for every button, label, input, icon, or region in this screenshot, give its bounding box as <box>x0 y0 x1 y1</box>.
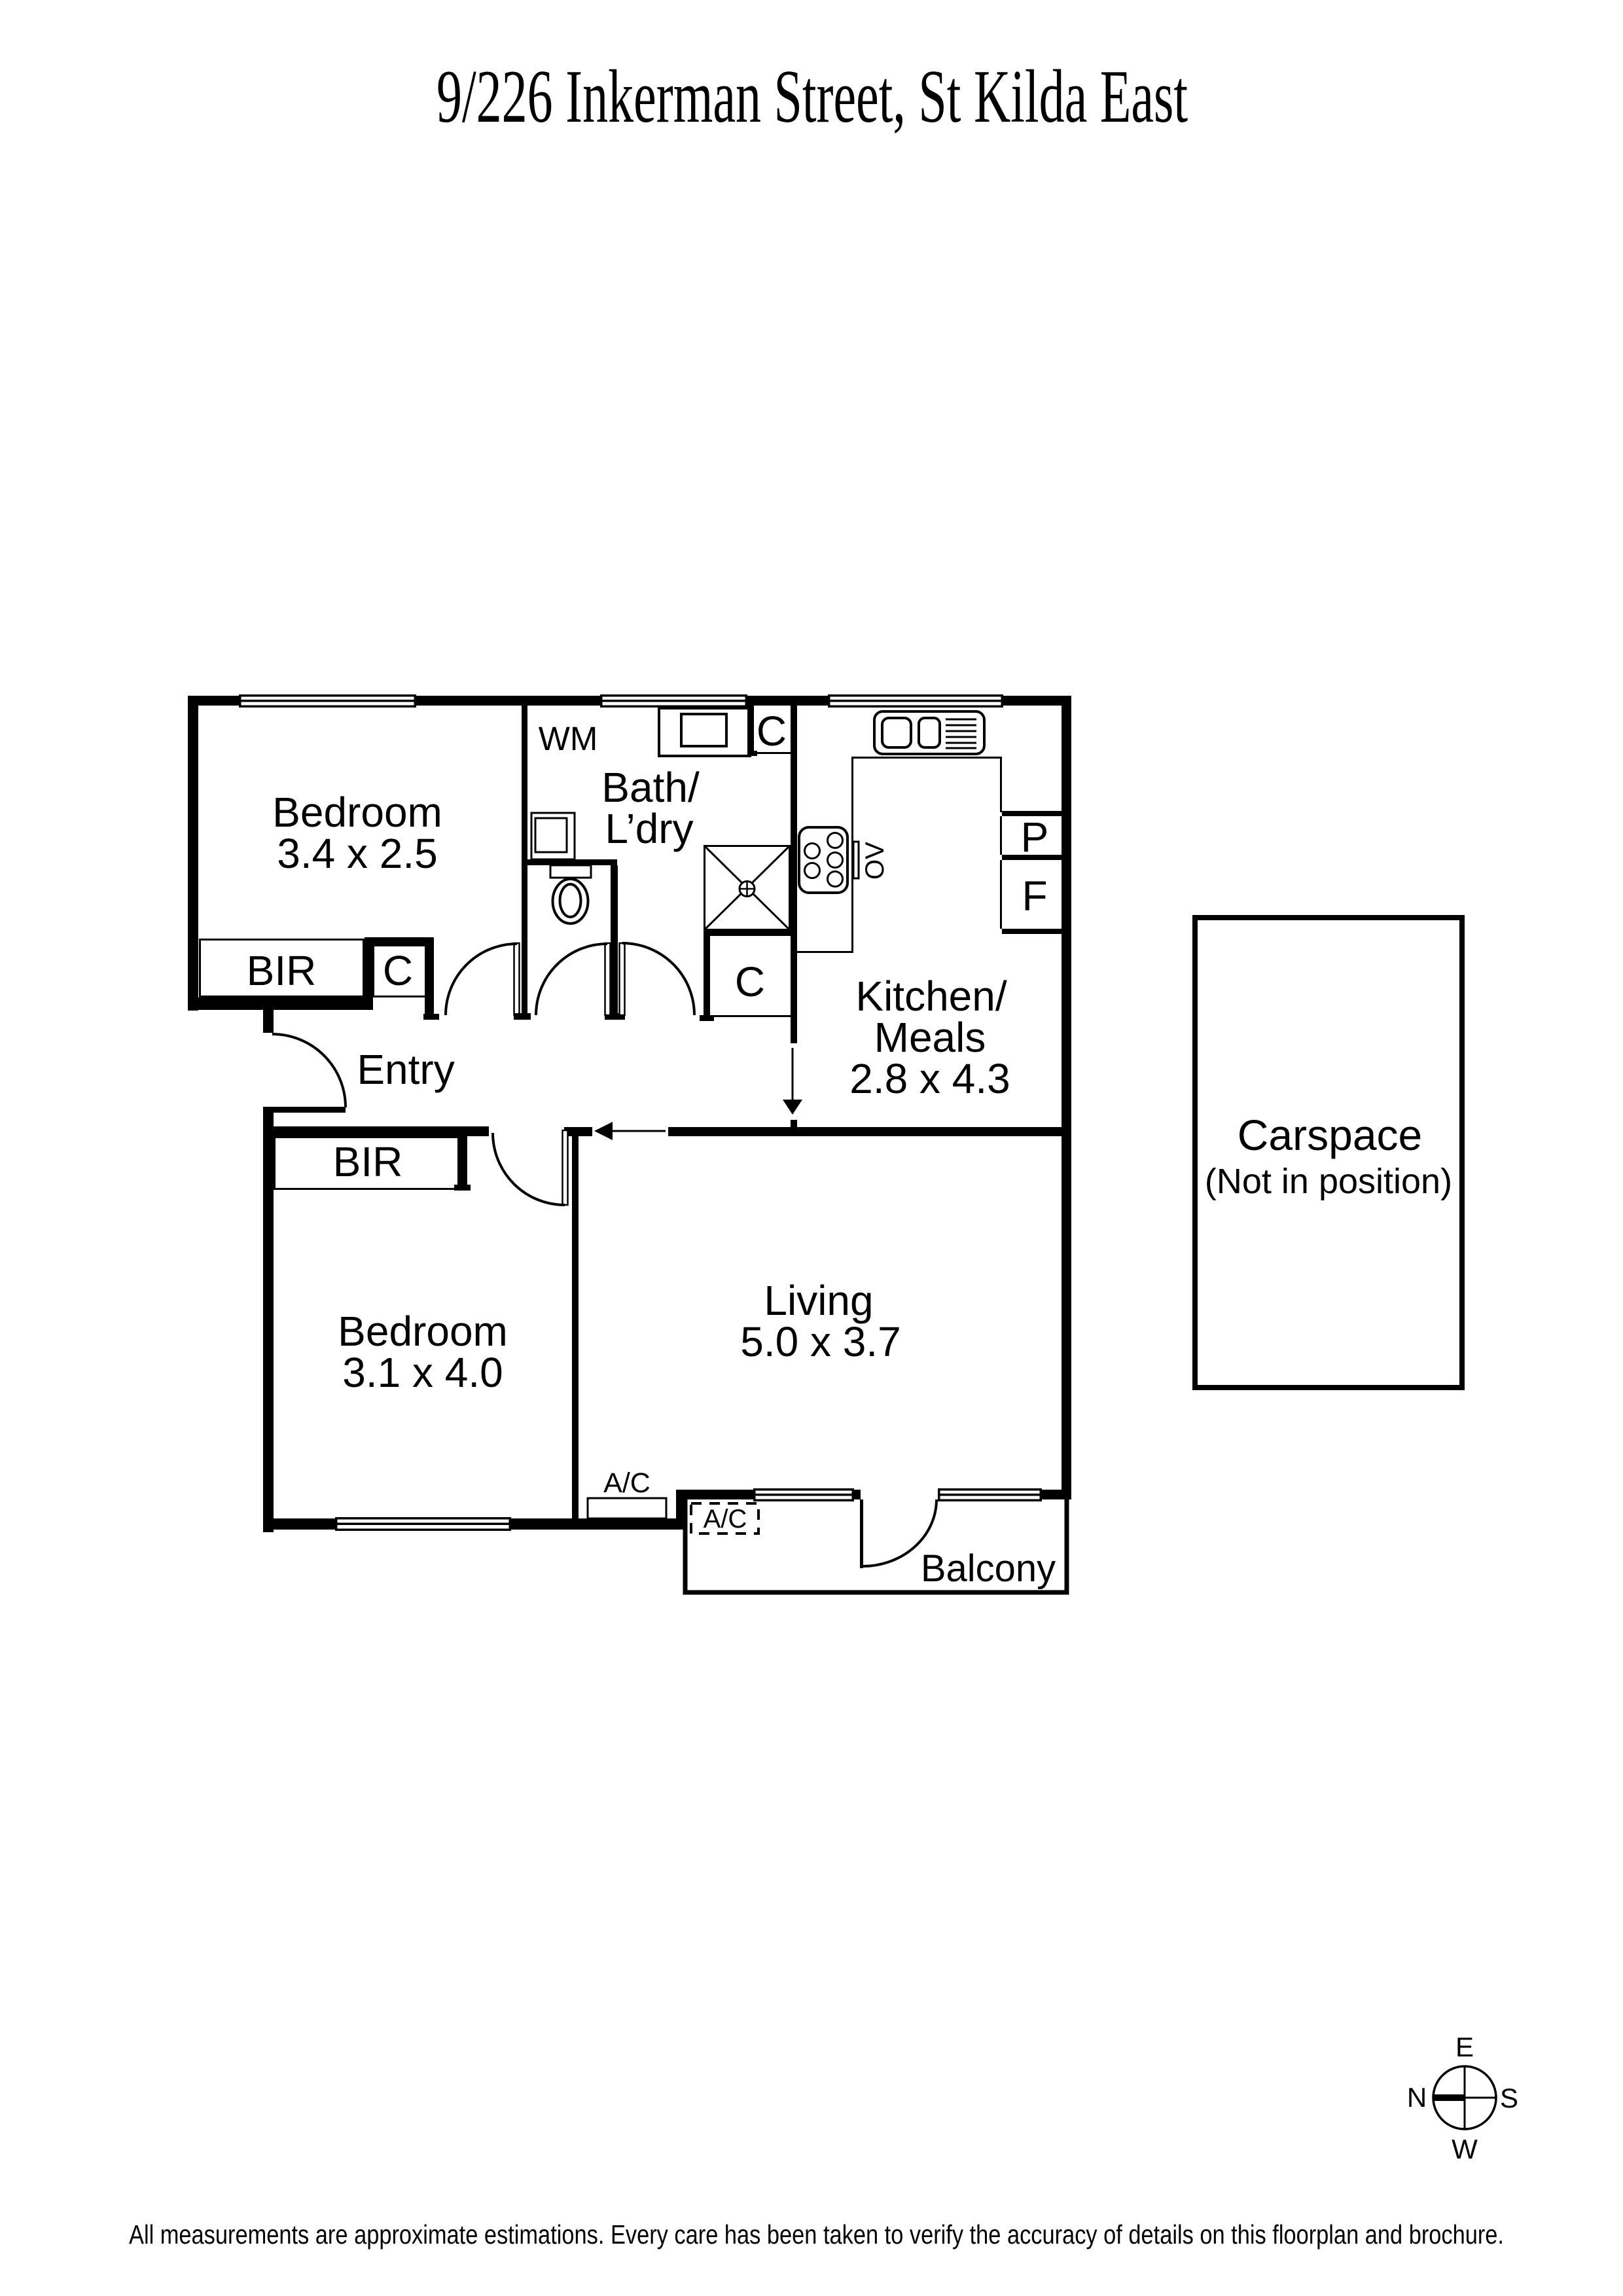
svg-text:F: F <box>1022 872 1047 920</box>
svg-text:2.8 x 4.3: 2.8 x 4.3 <box>849 1055 1010 1102</box>
svg-text:L’dry: L’dry <box>605 805 693 852</box>
svg-text:C: C <box>383 947 413 994</box>
svg-text:E: E <box>1455 2032 1474 2062</box>
svg-text:9/226 Inkerman Street, St Kild: 9/226 Inkerman Street, St Kilda East <box>437 55 1188 139</box>
svg-text:5.0 x 3.7: 5.0 x 3.7 <box>740 1318 901 1365</box>
svg-text:C: C <box>757 708 787 755</box>
svg-text:Bedroom: Bedroom <box>338 1308 508 1355</box>
svg-text:OV: OV <box>861 842 889 880</box>
svg-text:BIR: BIR <box>247 947 317 994</box>
svg-text:Carspace: Carspace <box>1238 1111 1422 1159</box>
svg-text:A/C: A/C <box>704 1505 747 1534</box>
svg-text:Meals: Meals <box>874 1014 986 1061</box>
svg-text:C: C <box>735 958 765 1005</box>
svg-text:Bath/: Bath/ <box>601 764 700 811</box>
svg-text:P: P <box>1021 814 1049 861</box>
svg-text:3.4 x 2.5: 3.4 x 2.5 <box>277 830 438 877</box>
svg-text:S: S <box>1500 2083 1518 2113</box>
svg-text:Living: Living <box>764 1277 873 1324</box>
svg-text:WM: WM <box>539 720 598 757</box>
svg-text:Balcony: Balcony <box>921 1547 1056 1590</box>
svg-text:Bedroom: Bedroom <box>272 789 442 836</box>
svg-text:BIR: BIR <box>333 1138 403 1185</box>
svg-text:W: W <box>1452 2134 1478 2164</box>
svg-text:A/C: A/C <box>603 1467 651 1499</box>
svg-text:(Not in position): (Not in position) <box>1205 1162 1452 1201</box>
svg-text:Kitchen/: Kitchen/ <box>855 973 1007 1020</box>
svg-text:N: N <box>1407 2082 1427 2113</box>
svg-text:3.1 x 4.0: 3.1 x 4.0 <box>342 1349 503 1396</box>
svg-text:All measurements are approxima: All measurements are approximate estimat… <box>129 2219 1504 2250</box>
svg-text:Entry: Entry <box>357 1046 454 1093</box>
